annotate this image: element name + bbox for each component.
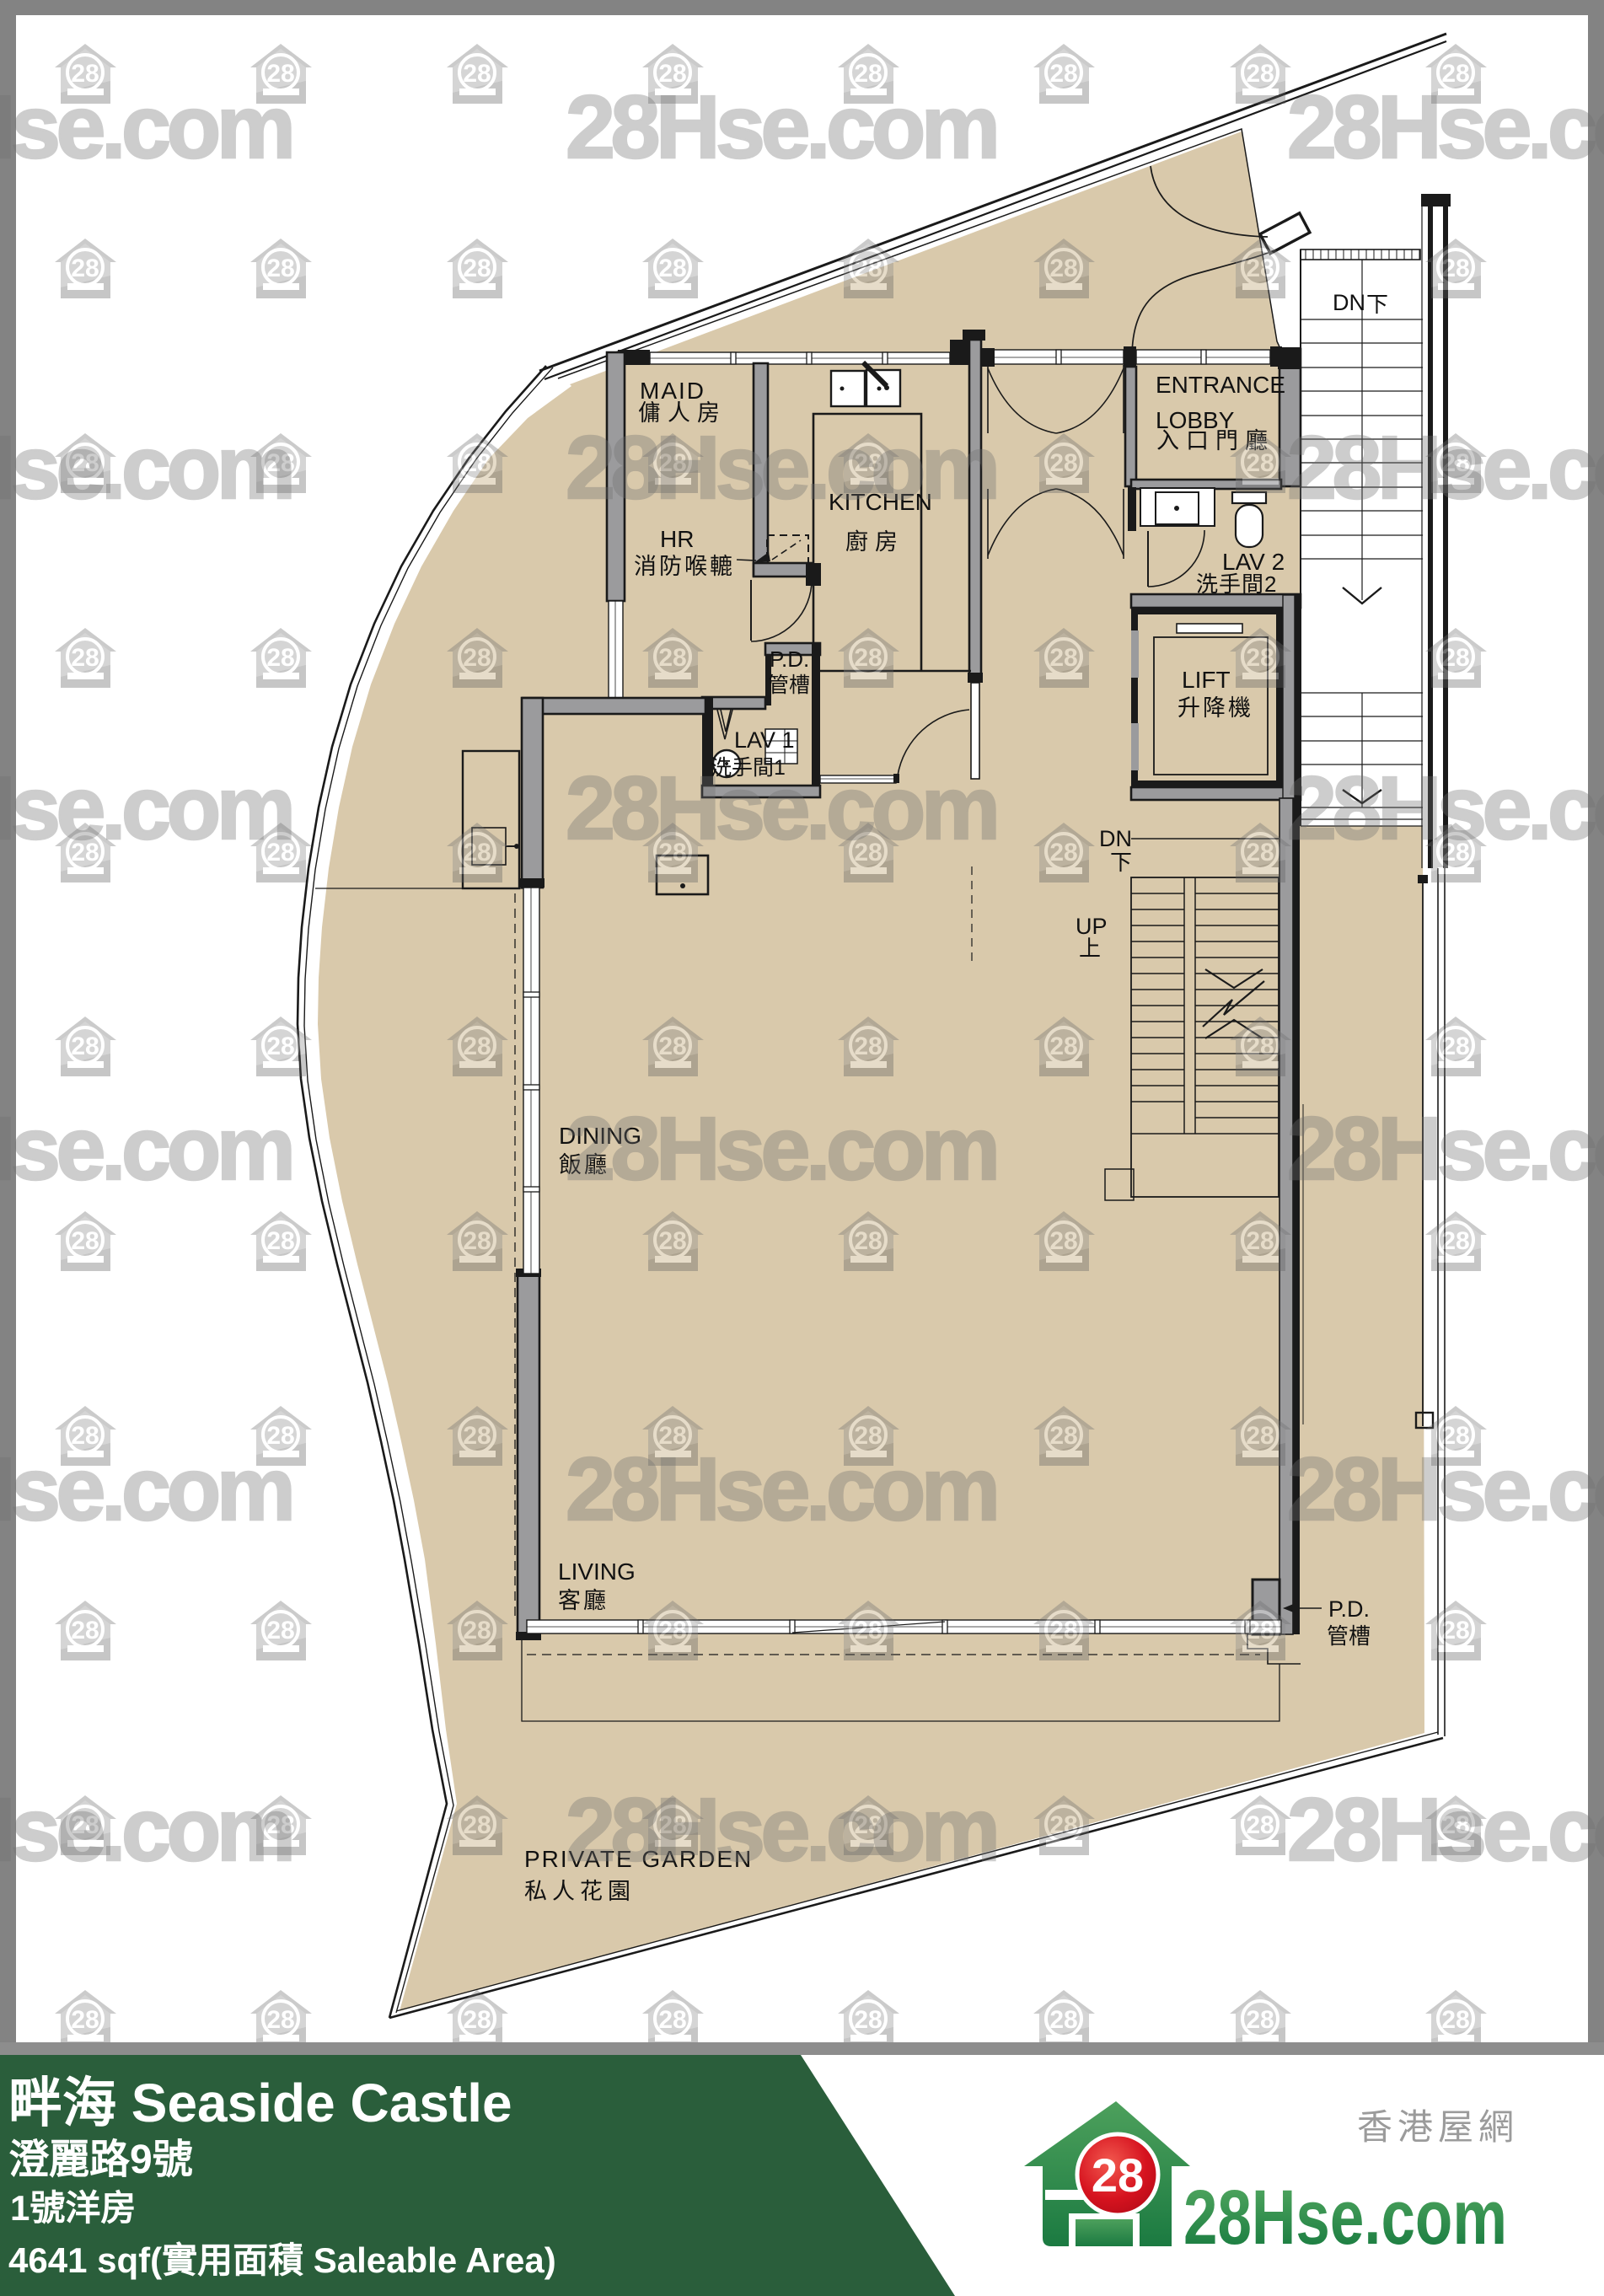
- svg-text:28Hse.com: 28Hse.com: [0, 1099, 296, 1199]
- svg-text:28Hse.com: 28Hse.com: [0, 1440, 296, 1539]
- svg-text:28Hse.com: 28Hse.com: [566, 759, 1000, 858]
- svg-text:28Hse.com: 28Hse.com: [566, 418, 1000, 518]
- svg-text:28Hse.com: 28Hse.com: [566, 1780, 1000, 1880]
- svg-text:28Hse.com: 28Hse.com: [1287, 78, 1604, 177]
- svg-text:28Hse.com: 28Hse.com: [1287, 418, 1604, 518]
- svg-text:28Hse.com: 28Hse.com: [0, 759, 296, 858]
- svg-text:28Hse.com: 28Hse.com: [566, 1440, 1000, 1539]
- svg-text:28: 28: [1092, 2148, 1144, 2202]
- svg-text:28Hse.com: 28Hse.com: [1287, 1440, 1604, 1539]
- svg-text:28Hse.com: 28Hse.com: [0, 1780, 296, 1880]
- svg-text:28Hse.com: 28Hse.com: [1183, 2175, 1507, 2261]
- svg-text:28Hse.com: 28Hse.com: [566, 1099, 1000, 1199]
- svg-text:28Hse.com: 28Hse.com: [1287, 1780, 1604, 1880]
- svg-text:28Hse.com: 28Hse.com: [0, 78, 296, 177]
- svg-text:28Hse.com: 28Hse.com: [1287, 759, 1604, 858]
- svg-text:28Hse.com: 28Hse.com: [0, 418, 296, 518]
- svg-text:28Hse.com: 28Hse.com: [1287, 1099, 1604, 1199]
- svg-text:28Hse.com: 28Hse.com: [566, 78, 1000, 177]
- svg-text:香港屋網: 香港屋網: [1357, 2107, 1519, 2147]
